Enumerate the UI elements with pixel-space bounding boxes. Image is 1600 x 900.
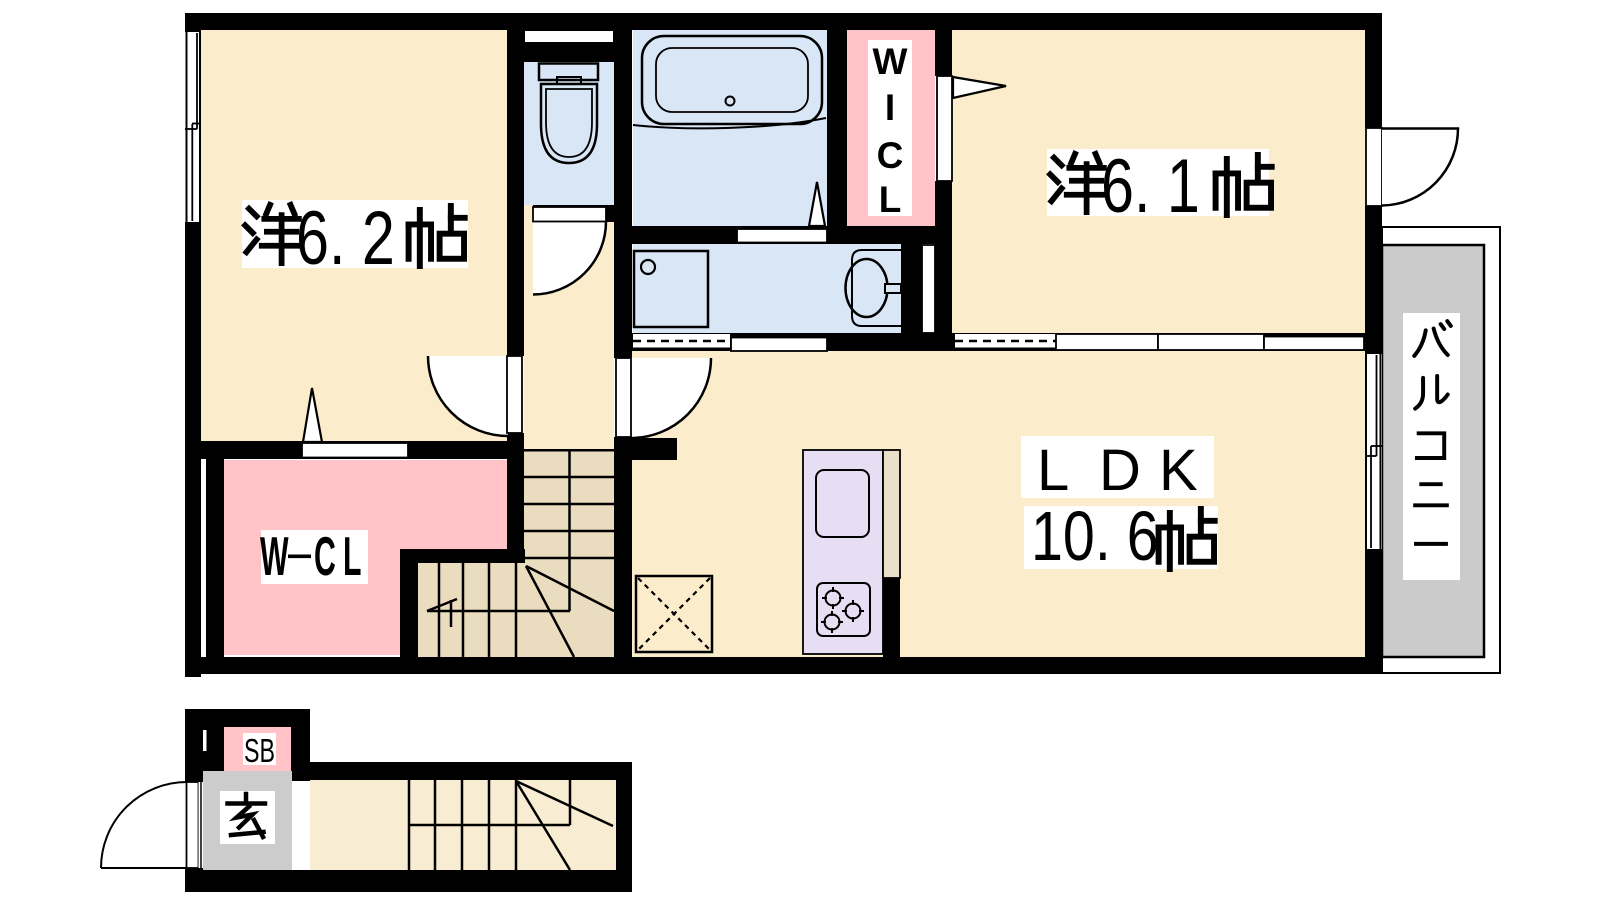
svg-text:L: L — [1037, 438, 1069, 503]
svg-text:L: L — [343, 527, 361, 588]
svg-text:SB: SB — [244, 732, 275, 769]
svg-text:10. 6: 10. 6 — [1031, 497, 1159, 576]
svg-text:L: L — [879, 179, 902, 220]
svg-text:C: C — [877, 135, 904, 176]
svg-text:W: W — [260, 527, 289, 588]
svg-text:D: D — [1099, 438, 1141, 503]
svg-text:C: C — [314, 527, 336, 588]
svg-text:I: I — [885, 87, 895, 128]
svg-text:K: K — [1159, 438, 1198, 503]
svg-text:6. 1: 6. 1 — [1101, 144, 1200, 229]
svg-text:W: W — [873, 41, 908, 82]
svg-text:6. 2: 6. 2 — [296, 196, 395, 281]
